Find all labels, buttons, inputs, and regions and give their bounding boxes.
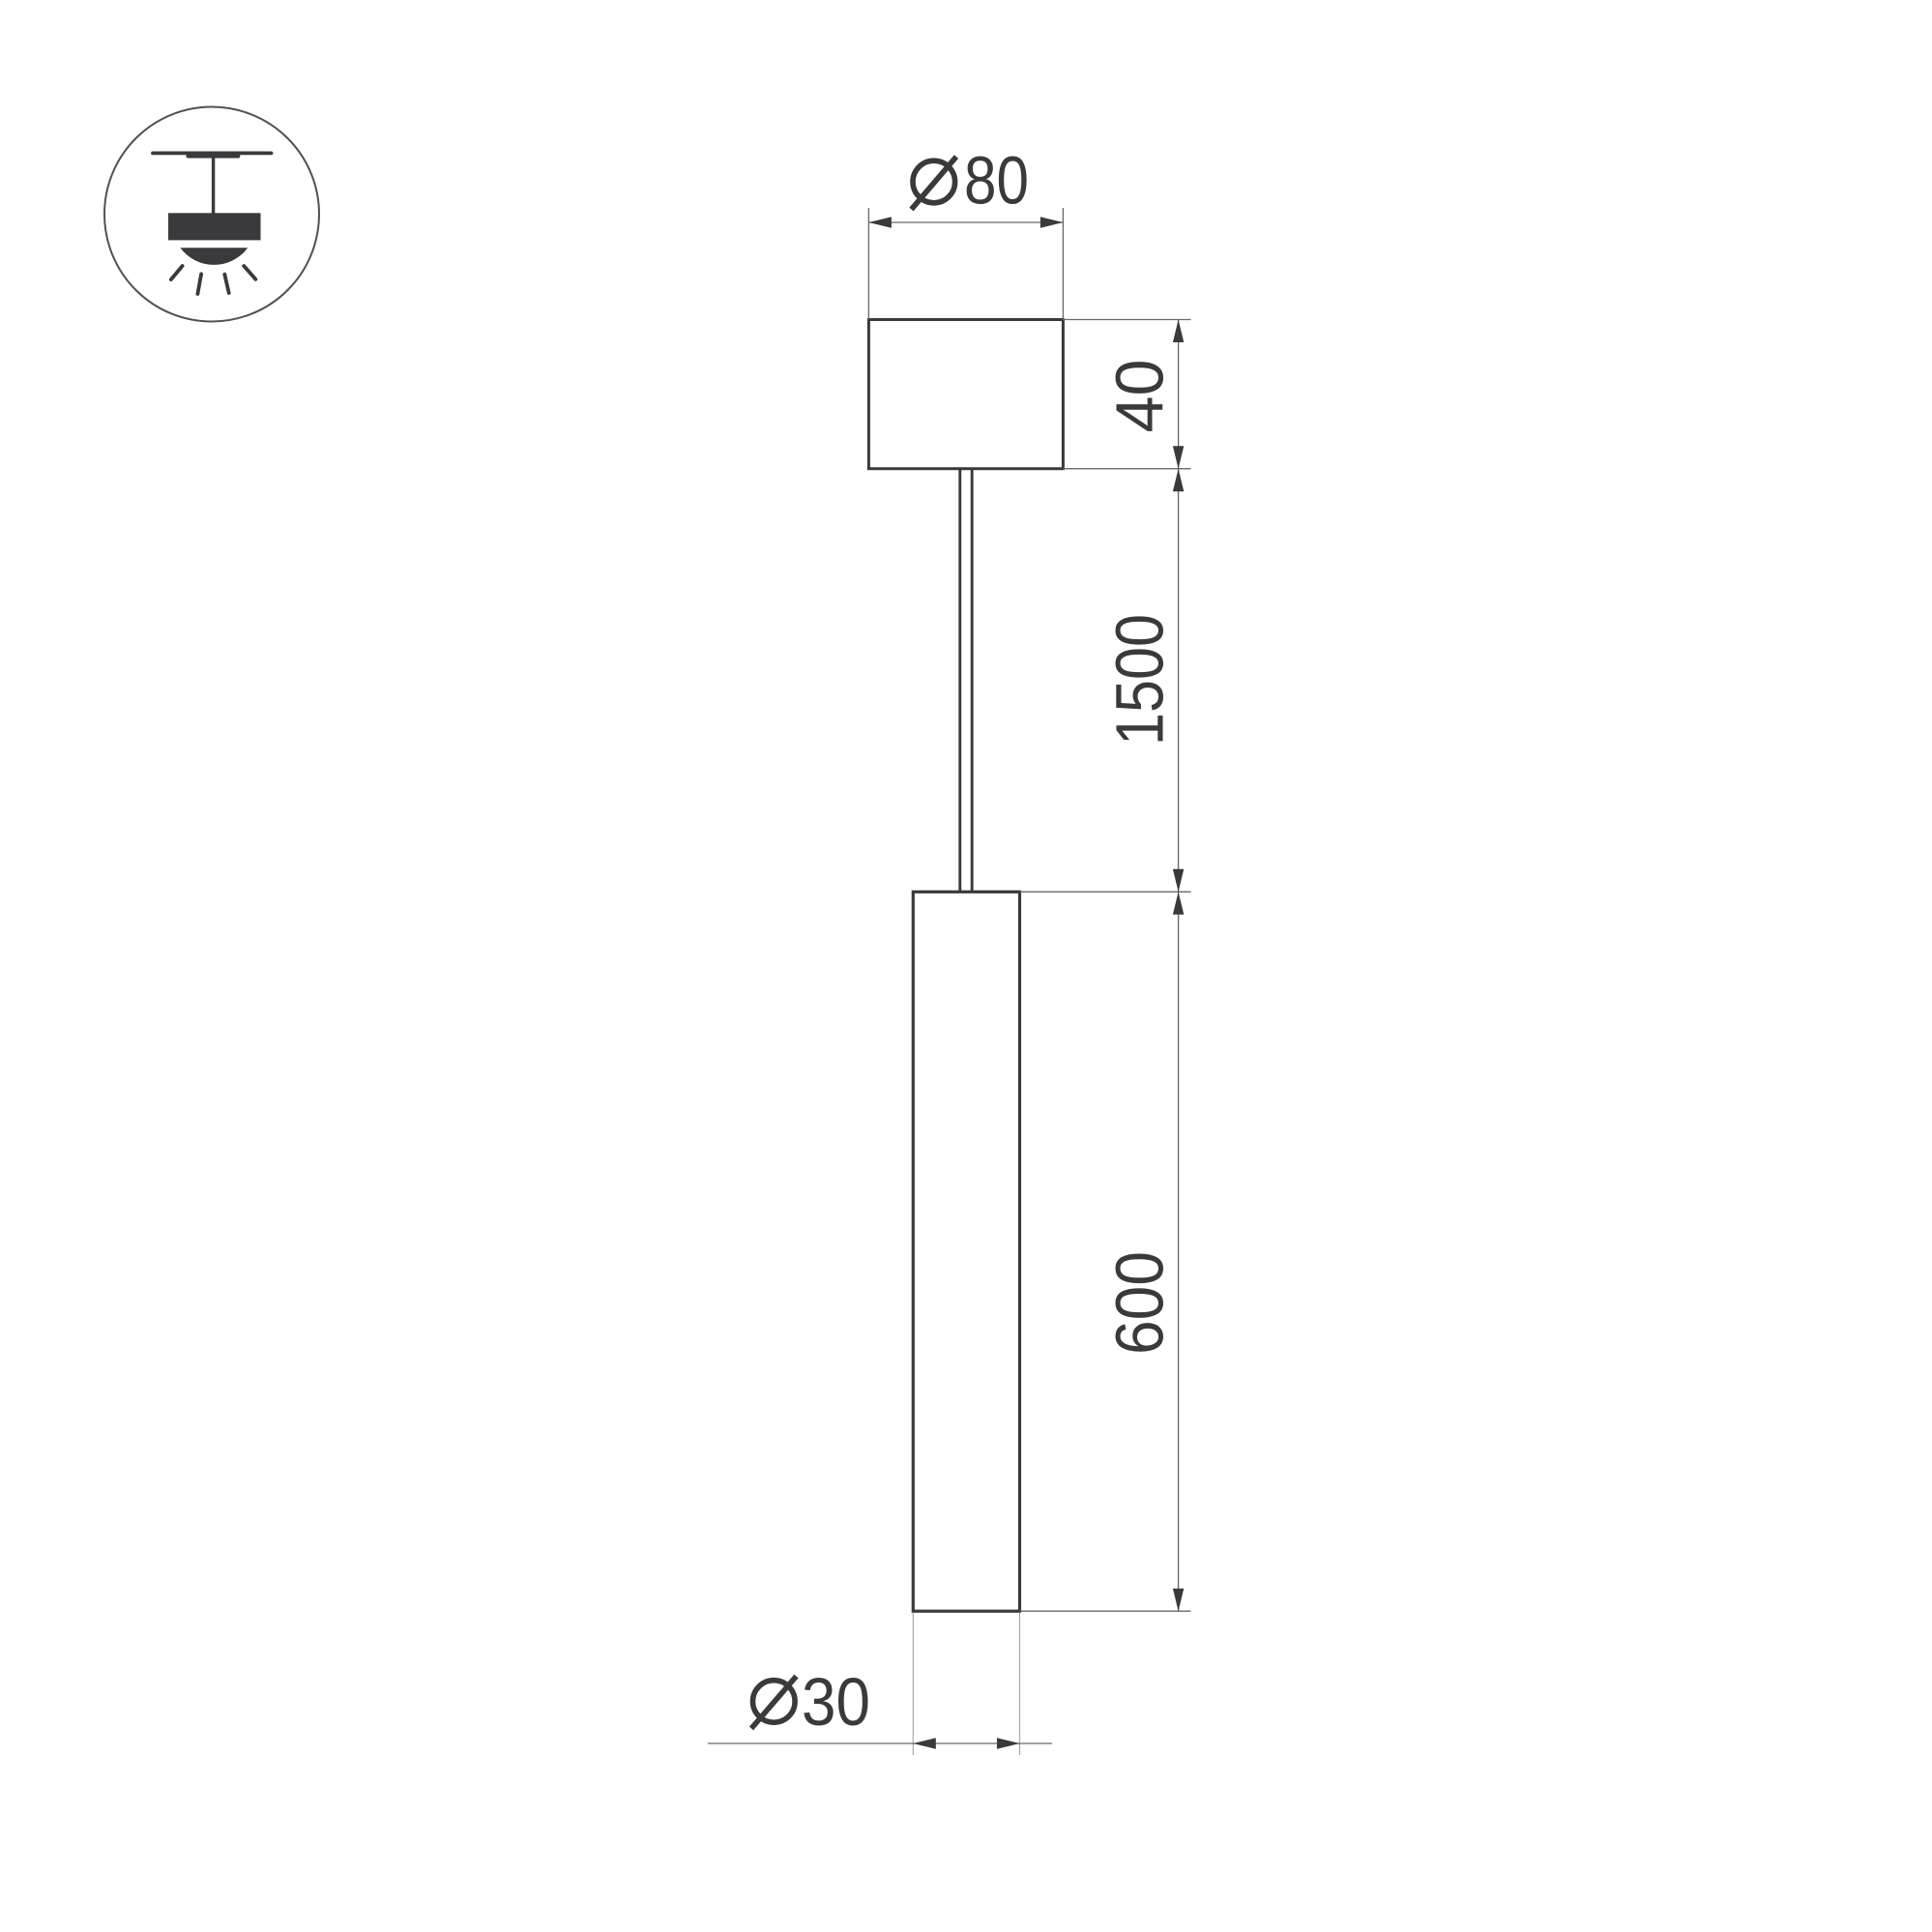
svg-text:600: 600 (1102, 1251, 1178, 1355)
svg-text:40: 40 (1102, 360, 1178, 433)
svg-text:1500: 1500 (1102, 614, 1178, 746)
svg-text:30: 30 (802, 1664, 870, 1740)
svg-text:80: 80 (964, 143, 1029, 219)
